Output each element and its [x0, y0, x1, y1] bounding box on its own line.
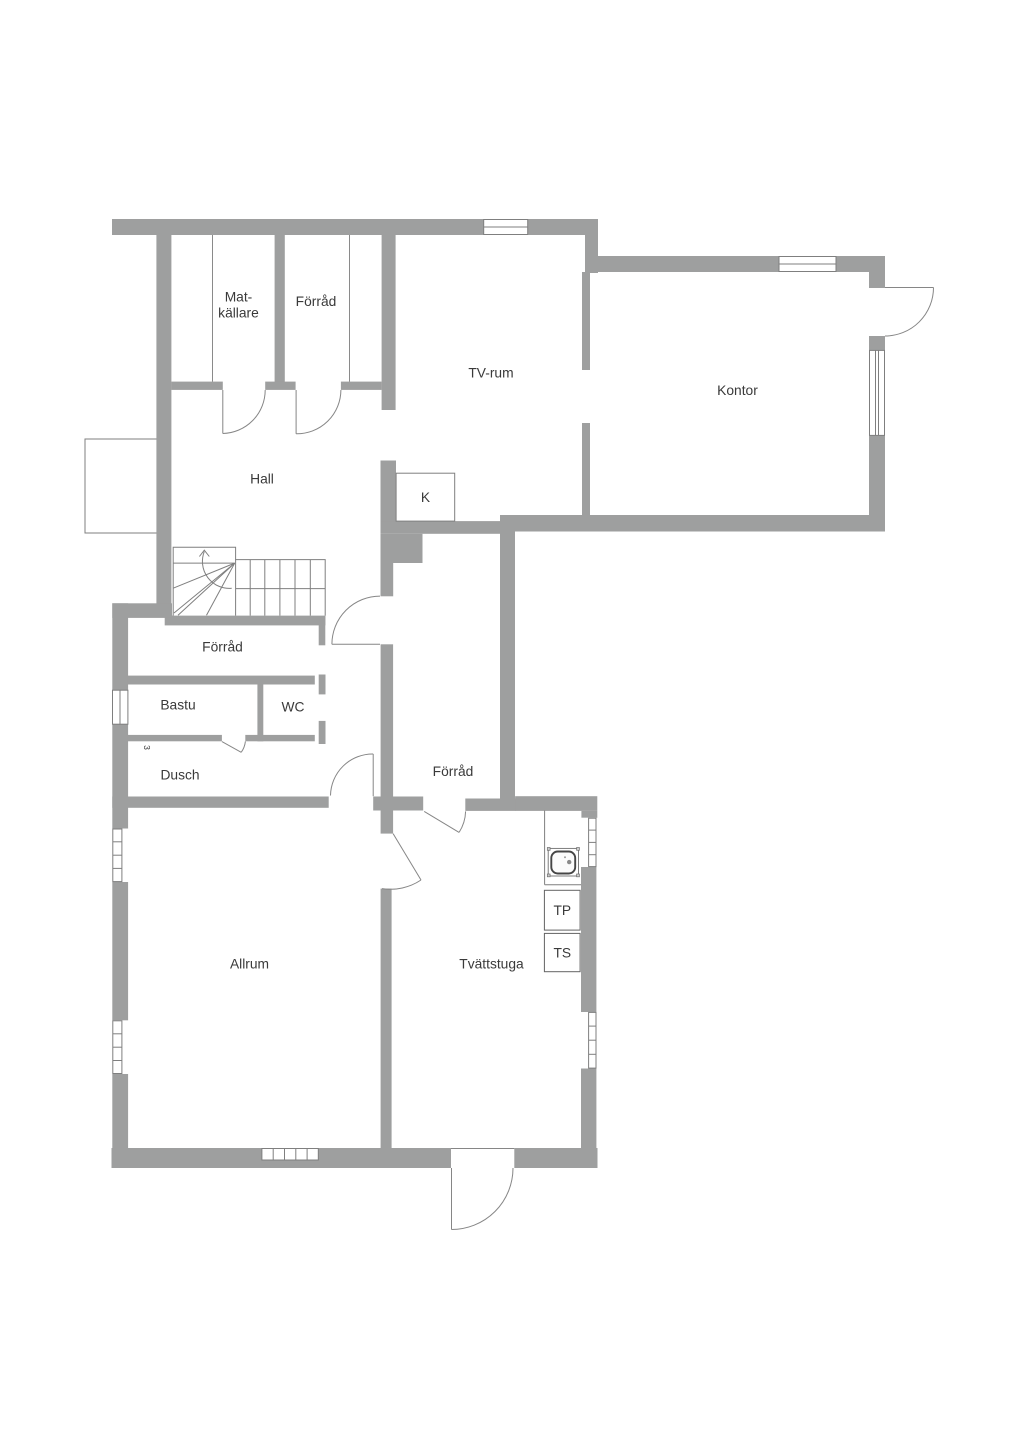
svg-text:Bastu: Bastu [160, 698, 195, 713]
svg-text:Mat-: Mat- [225, 290, 253, 305]
svg-text:3: 3 [142, 745, 152, 750]
svg-text:Dusch: Dusch [160, 768, 199, 783]
svg-text:Förråd: Förråd [202, 640, 243, 655]
svg-text:TP: TP [553, 903, 571, 918]
svg-text:TS: TS [553, 946, 571, 961]
svg-text:Allrum: Allrum [230, 957, 269, 972]
svg-text:Tvättstuga: Tvättstuga [459, 957, 524, 972]
svg-text:Hall: Hall [250, 472, 274, 487]
svg-text:Förråd: Förråd [433, 764, 474, 779]
svg-text:K: K [421, 490, 431, 505]
svg-text:WC: WC [282, 699, 305, 714]
svg-text:Kontor: Kontor [717, 383, 758, 398]
svg-text:källare: källare [218, 306, 259, 321]
svg-text:TV-rum: TV-rum [468, 366, 513, 381]
svg-text:Förråd: Förråd [296, 294, 337, 309]
